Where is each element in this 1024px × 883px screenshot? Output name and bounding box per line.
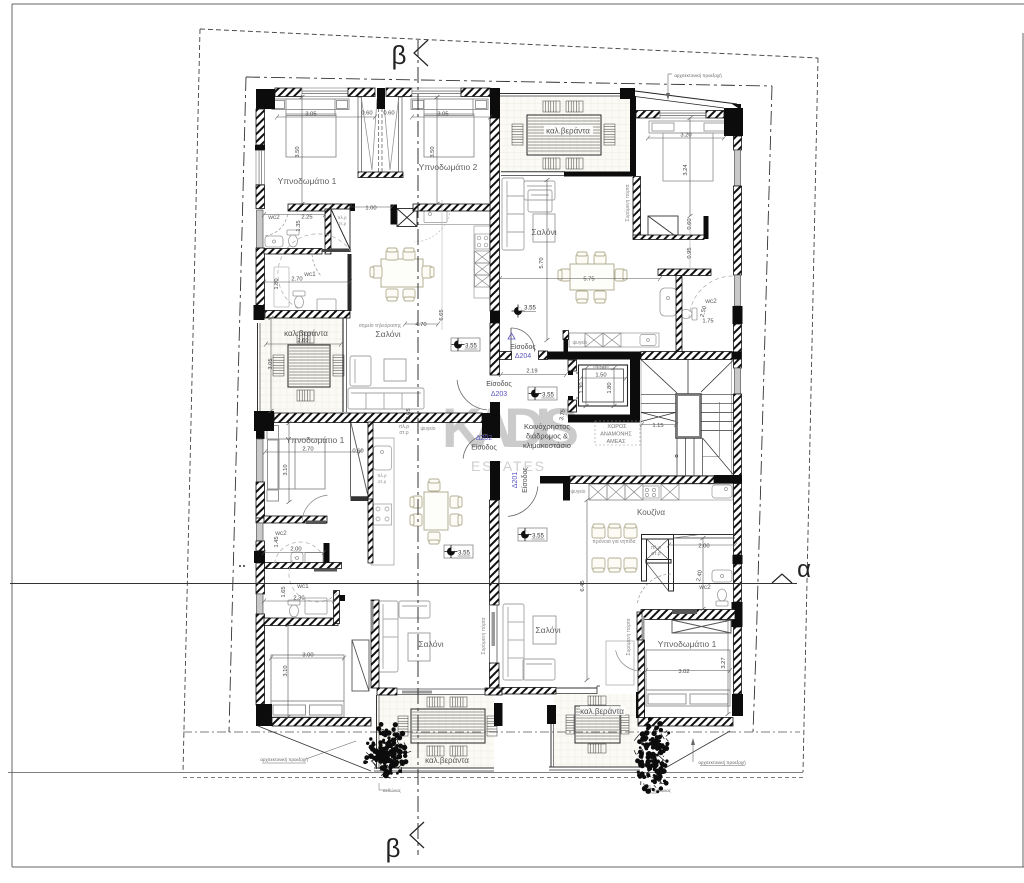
svg-text:wc1: wc1: [303, 271, 316, 278]
svg-text:1.35: 1.35: [296, 220, 302, 231]
svg-text:1.50: 1.50: [595, 373, 606, 379]
svg-text:1.80: 1.80: [607, 382, 613, 393]
svg-text:β: β: [386, 833, 401, 863]
svg-text:6.45: 6.45: [580, 580, 586, 591]
svg-text:2.30: 2.30: [293, 596, 304, 602]
svg-text:2.19: 2.19: [526, 369, 537, 375]
svg-text:1.80: 1.80: [274, 278, 280, 289]
svg-text:3.05: 3.05: [437, 112, 448, 118]
svg-text:καλ.βεράντα: καλ.βεράντα: [425, 756, 469, 765]
svg-text:στ.ρ: στ.ρ: [651, 551, 660, 557]
svg-text:1.50: 1.50: [596, 365, 607, 371]
svg-text:αρχιτεκτονική προεξοχή: αρχιτεκτονική προεξοχή: [698, 759, 746, 765]
svg-text:1.75: 1.75: [702, 319, 713, 325]
svg-text:3.55: 3.55: [465, 344, 477, 350]
svg-text:καλ.βεράντα: καλ.βεράντα: [546, 127, 590, 136]
svg-text:Συρόμενη πόρτα: Συρόμενη πόρτα: [624, 184, 631, 221]
svg-text:wc2: wc2: [274, 530, 287, 537]
svg-text:wc2: wc2: [704, 298, 717, 305]
svg-text:2.70: 2.70: [302, 447, 313, 453]
svg-text:3.24: 3.24: [683, 164, 689, 176]
svg-text:Σαλόνι: Σαλόνι: [418, 639, 443, 649]
svg-text:πλ.ρ: πλ.ρ: [377, 473, 387, 478]
svg-text:5.75: 5.75: [583, 277, 594, 283]
svg-text:σημείο τηλεόρασης: σημείο τηλεόρασης: [359, 322, 402, 329]
svg-text:3.05: 3.05: [305, 112, 316, 118]
svg-text:2.60: 2.60: [297, 338, 308, 344]
svg-text:α: α: [797, 556, 811, 583]
svg-text:wc2: wc2: [698, 584, 711, 591]
svg-text:Είσοδος: Είσοδος: [521, 467, 529, 493]
svg-text:2.25: 2.25: [301, 215, 312, 221]
svg-text:ΑΝΑΜΟΝΗΣ: ΑΝΑΜΟΝΗΣ: [600, 432, 632, 438]
svg-text:Υπνοδωμάτιο 2: Υπνοδωμάτιο 2: [419, 162, 478, 172]
svg-text:Σαλόνι: Σαλόνι: [531, 227, 556, 237]
svg-text:3.05: 3.05: [268, 358, 274, 369]
svg-text:3.55: 3.55: [542, 393, 554, 399]
svg-text:ΑΜΕΑΣ: ΑΜΕΑΣ: [607, 439, 627, 445]
svg-text:Είσοδος: Είσοδος: [510, 343, 536, 351]
svg-text:3.00: 3.00: [302, 653, 313, 659]
svg-text:Δ202: Δ202: [476, 435, 492, 442]
svg-text:0.60: 0.60: [361, 111, 372, 117]
svg-text:κλιμακοστάσιο: κλιμακοστάσιο: [523, 441, 571, 450]
svg-text:3.10: 3.10: [283, 665, 289, 676]
svg-text:2.70: 2.70: [291, 277, 302, 283]
svg-text:ΧΩΡΟΣ: ΧΩΡΟΣ: [607, 424, 627, 430]
svg-text:3.50: 3.50: [430, 146, 436, 157]
svg-text:ψυγείο: ψυγείο: [573, 340, 588, 346]
svg-text:πρόνοια για νηπίδα: πρόνοια για νηπίδα: [592, 538, 635, 545]
svg-text:4.70: 4.70: [415, 322, 426, 328]
svg-text:διάδρομος &: διάδρομος &: [526, 432, 568, 441]
svg-text:1.15: 1.15: [652, 423, 663, 429]
svg-text:1.65: 1.65: [281, 586, 287, 597]
svg-text:Συρόμενη πόρτα: Συρόμενη πόρτα: [480, 617, 487, 654]
svg-text:ψυγείο: ψυγείο: [421, 426, 436, 432]
svg-text:καλ.βεράντα: καλ.βεράντα: [284, 329, 328, 338]
svg-text:wc2: wc2: [267, 214, 280, 221]
svg-text:Υπνοδωμάτιο 1: Υπνοδωμάτιο 1: [658, 639, 717, 649]
svg-text:στ.ρ: στ.ρ: [399, 430, 408, 436]
svg-text:καλ.βεράντα: καλ.βεράντα: [580, 707, 624, 716]
svg-text:3.10: 3.10: [283, 464, 289, 475]
svg-text:2.00: 2.00: [698, 544, 709, 550]
svg-text:0.60: 0.60: [352, 449, 363, 455]
svg-text:Δ201: Δ201: [512, 472, 519, 488]
svg-text:Είσοδος: Είσοδος: [471, 444, 497, 452]
svg-text:ESTATES: ESTATES: [471, 458, 550, 474]
svg-text:Σαλόνι: Σαλόνι: [375, 329, 400, 339]
svg-text:β: β: [392, 40, 407, 70]
svg-text:6.65: 6.65: [406, 408, 412, 419]
svg-text:3.02: 3.02: [678, 669, 689, 675]
svg-text:Σαλόνι: Σαλόνι: [535, 625, 560, 635]
svg-text:Κοινόχρηστος: Κοινόχρηστος: [524, 422, 570, 431]
svg-text:3.27: 3.27: [721, 657, 727, 668]
svg-text:στ.ρ: στ.ρ: [378, 479, 387, 484]
svg-text:Δ204: Δ204: [515, 353, 531, 360]
svg-text:Είσοδος: Είσοδος: [486, 380, 512, 388]
svg-text:Κουζίνα: Κουζίνα: [637, 508, 665, 517]
svg-text:αρχιτεκτονική προεξοχή: αρχιτεκτονική προεξοχή: [674, 72, 722, 78]
svg-text:3.55: 3.55: [458, 551, 470, 557]
svg-text:Υπνοδωμάτιο 1: Υπνοδωμάτιο 1: [286, 435, 345, 445]
svg-text:Δ203: Δ203: [491, 391, 507, 398]
svg-text:3.50: 3.50: [295, 146, 301, 157]
svg-text:1.00: 1.00: [365, 206, 376, 212]
svg-text:στ.ρ: στ.ρ: [338, 221, 347, 226]
svg-text:3.55: 3.55: [524, 306, 536, 312]
svg-text:3.55: 3.55: [532, 534, 544, 540]
svg-text:πλ.ρ: πλ.ρ: [337, 215, 347, 220]
svg-text:2.00: 2.00: [290, 547, 301, 553]
svg-text:5.70: 5.70: [539, 257, 545, 268]
svg-text:wc1: wc1: [296, 583, 309, 590]
svg-text:1.30: 1.30: [579, 382, 585, 393]
svg-text:0.60: 0.60: [383, 111, 394, 117]
svg-text:ψυγείο: ψυγείο: [571, 489, 586, 495]
svg-text:αρχιτεκτονική προεξοχή: αρχιτεκτονική προεξοχή: [260, 756, 308, 762]
svg-text:Υπνοδωμάτιο 1: Υπνοδωμάτιο 1: [278, 176, 337, 186]
svg-text:Συρόμενη πόρτα: Συρόμενη πόρτα: [625, 618, 632, 655]
svg-text:1.45: 1.45: [274, 536, 280, 547]
